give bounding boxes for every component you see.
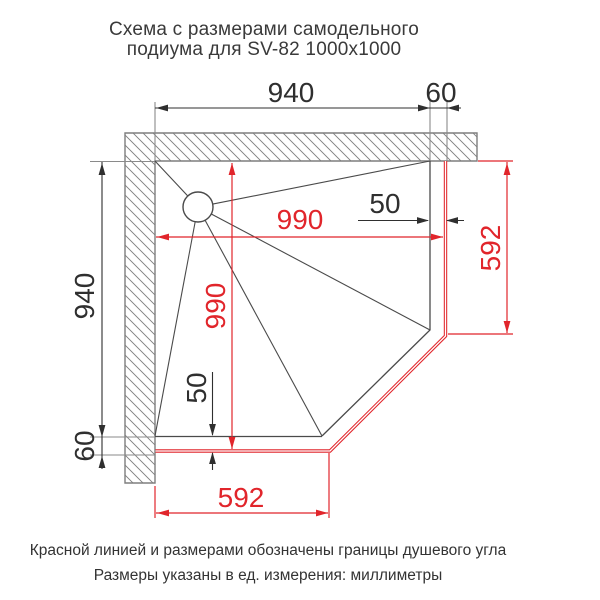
dim-arrows [209,424,216,464]
dim-label-top-940: 940 [268,77,315,108]
dim-gap-right: 50 [358,188,464,224]
dim-gap-bottom: 50 [181,372,216,470]
dim-label-gap-bottom-50: 50 [181,372,212,403]
dim-label-top-60: 60 [425,77,456,108]
dim-edge-right: 592 [448,161,513,334]
dim-label-edge-bottom-592: 592 [218,482,265,513]
dim-edge-bottom: 592 [155,453,329,518]
dim-left-height: 940 60 [69,162,105,469]
podium-diagram-canvas: 940 60 940 60 50 50 [0,0,600,600]
dim-top-width: 940 60 [155,77,461,111]
dim-label-gap-right-50: 50 [369,188,400,219]
legend-note-red-line: Красной линией и размерами обозначены гр… [0,542,536,560]
drain-circle [183,192,213,222]
dim-arrows [417,217,458,224]
dim-label-left-60: 60 [69,430,100,461]
dim-label-shower-height-990: 990 [200,283,231,330]
dim-label-edge-right-592: 592 [475,225,506,272]
dim-label-shower-width-990: 990 [277,204,324,235]
dim-label-left-940: 940 [69,273,100,320]
legend-note-units: Размеры указаны в ед. измерения: миллиме… [0,567,536,585]
